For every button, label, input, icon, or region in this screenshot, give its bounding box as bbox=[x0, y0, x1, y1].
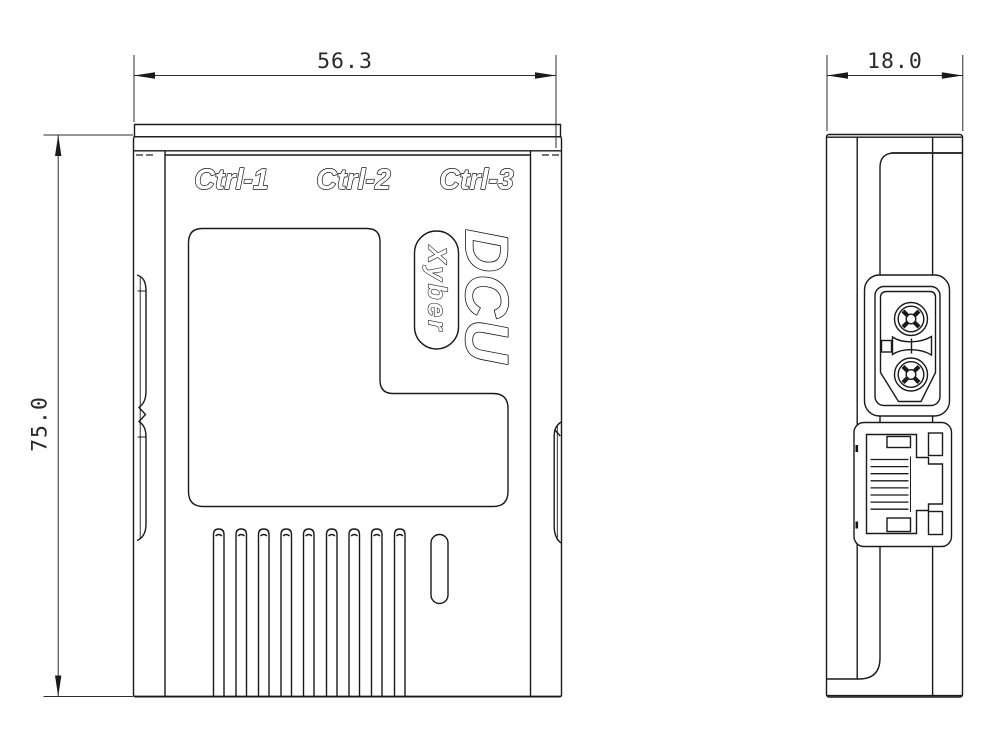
dimension-height: 75.0 bbox=[28, 135, 134, 697]
product-logo: DCU bbox=[453, 229, 520, 365]
drawing-svg: Ctrl-1 Ctrl-2 Ctrl-3 DCU Xyber bbox=[0, 0, 1000, 737]
arrow-left bbox=[134, 72, 155, 78]
dim-height-label: 75.0 bbox=[28, 396, 53, 452]
dimension-width: 56.3 bbox=[134, 49, 556, 148]
ethernet-nub-top bbox=[856, 445, 859, 452]
arrow-top bbox=[55, 135, 61, 156]
port-label-3: Ctrl-3 bbox=[439, 164, 514, 196]
front-body-outline bbox=[134, 137, 562, 697]
brand-logo: Xyber bbox=[423, 244, 453, 333]
side-view bbox=[827, 135, 963, 698]
port-label-2: Ctrl-2 bbox=[316, 164, 391, 196]
technical-drawing: Ctrl-1 Ctrl-2 Ctrl-3 DCU Xyber bbox=[0, 0, 1000, 737]
arrow-bottom bbox=[55, 676, 61, 697]
arrow-right bbox=[535, 72, 556, 78]
dimension-depth: 18.0 bbox=[827, 49, 963, 131]
port-label-1: Ctrl-1 bbox=[194, 164, 268, 196]
arrow-left bbox=[827, 72, 848, 78]
arrow-right bbox=[942, 72, 963, 78]
power-connector bbox=[865, 275, 950, 416]
front-view: Ctrl-1 Ctrl-2 Ctrl-3 DCU Xyber bbox=[134, 125, 562, 697]
ethernet-nub-bottom bbox=[856, 522, 859, 529]
front-top-lip bbox=[135, 125, 561, 137]
ethernet-port bbox=[854, 423, 952, 547]
dim-width-label: 56.3 bbox=[317, 49, 373, 74]
dim-depth-label: 18.0 bbox=[867, 49, 923, 74]
ethernet-port-housing bbox=[854, 423, 952, 547]
